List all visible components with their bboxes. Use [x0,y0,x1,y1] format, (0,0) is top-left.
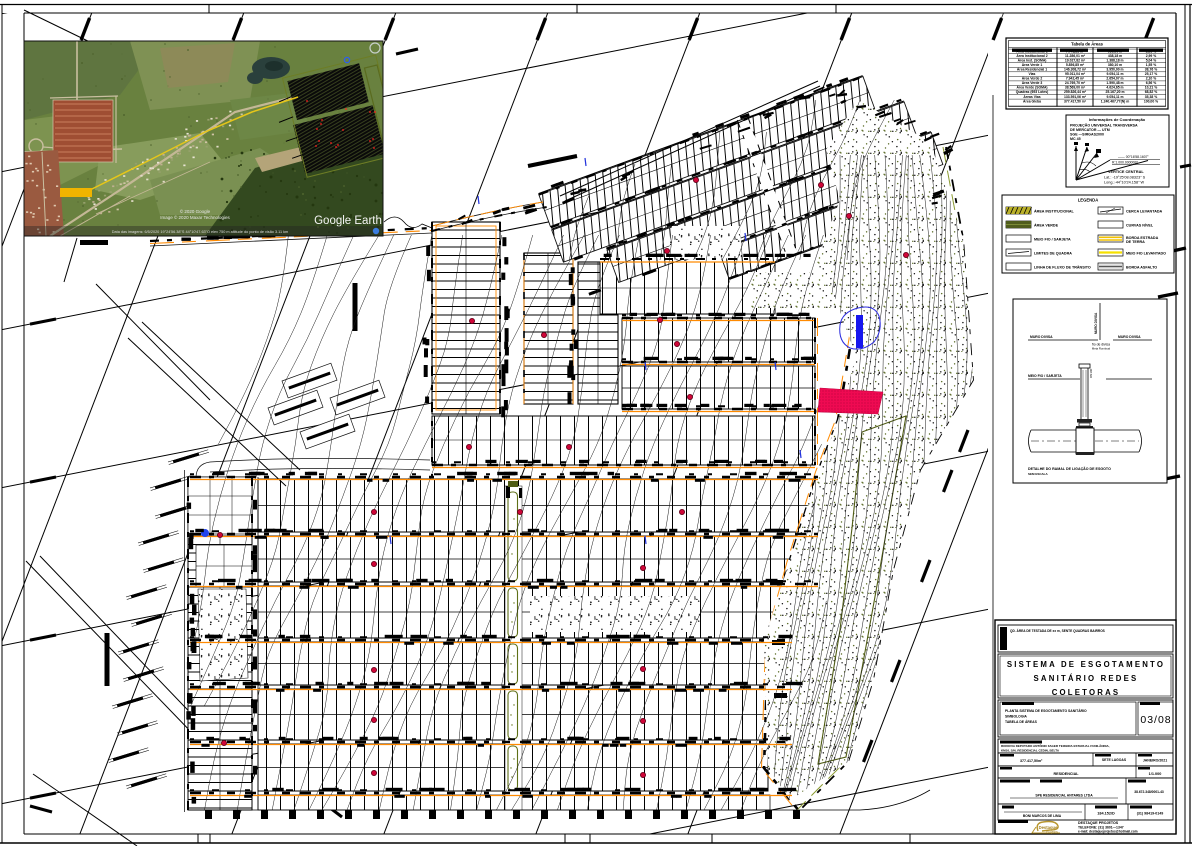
svg-text:MURO DIVISA: MURO DIVISA [1094,312,1098,334]
svg-text:9.054,11 m: 9.054,11 m [1107,72,1124,76]
svg-text:Tabela de Áreas: Tabela de Áreas [1071,42,1103,47]
svg-text:MEIO FIO LEVANTADO: MEIO FIO LEVANTADO [1126,252,1166,256]
svg-text:10,21 %: 10,21 % [1145,86,1157,90]
svg-text:SPE RESIDENCIAL ANTARES LTDA: SPE RESIDENCIAL ANTARES LTDA [1035,794,1093,798]
svg-text:5.856,85 m²: 5.856,85 m² [1066,63,1085,67]
svg-text:DETALHE DO RAMAL DE LIGAÇÃO DE: DETALHE DO RAMAL DE LIGAÇÃO DE ESGOTO [1028,466,1111,471]
svg-text:ÁREA VERDE: ÁREA VERDE [1034,223,1059,228]
svg-text:Vias: Vias [1029,72,1036,76]
svg-text:SIMBOLOGIA: SIMBOLOGIA [1005,715,1027,719]
svg-text:SETE LAGOAS: SETE LAGOAS [1102,758,1127,762]
svg-text:BONI MARCOS DE LIMA: BONI MARCOS DE LIMA [1023,814,1062,818]
svg-text:6,56 %: 6,56 % [1146,81,1157,85]
svg-text:2.654,07 m: 2.654,07 m [1106,77,1123,81]
svg-text:SGE —SIRGAS2000: SGE —SIRGAS2000 [1070,133,1104,137]
svg-text:Área Institucional 1: Área Institucional 1 [1016,48,1047,53]
svg-text:© 2020 Google: © 2020 Google [180,208,211,214]
svg-text:9.054,11 m: 9.054,11 m [1107,95,1124,99]
svg-text:4.624,65 m: 4.624,65 m [1106,86,1123,90]
svg-text:DESTAQUE PROJETOS: DESTAQUE PROJETOS [1078,821,1119,825]
svg-text:Long.:-44°10'24.158" W: Long.:-44°10'24.158" W [1104,181,1145,185]
svg-text:2,10 %: 2,10 % [1146,77,1157,81]
svg-text:380,10 m: 380,10 m [1108,63,1122,67]
svg-text:—— 00°16'58.1607": —— 00°16'58.1607" [1118,155,1150,159]
svg-text:SEM ESCALA: SEM ESCALA [1028,472,1049,476]
svg-text:Quadras (693 Lotes): Quadras (693 Lotes) [1016,90,1049,94]
svg-text:95.011,04 m²: 95.011,04 m² [1065,72,1086,76]
svg-text:MEIO FIO / SARJETA: MEIO FIO / SARJETA [1034,238,1071,242]
svg-text:Área Verde (SOMA): Área Verde (SOMA) [1016,85,1047,90]
svg-text:38.569,00 m²: 38.569,00 m² [1065,86,1086,90]
svg-text:SISTEMA DE ESGOTAMENTO: SISTEMA DE ESGOTAMENTO [1007,660,1165,669]
svg-text:RODOVIA DEPUTADO ANTÔNIO FAGER: RODOVIA DEPUTADO ANTÔNIO FAGER TEIXEIRA … [1001,743,1110,748]
svg-text:35,38 %: 35,38 % [1145,95,1157,99]
svg-text:LIMITES DE QUADRA: LIMITES DE QUADRA [1034,252,1072,256]
svg-text:R:1.000.0000000: R:1.000.0000000 [1112,161,1138,165]
svg-text:146.308,72 m²: 146.308,72 m² [1064,68,1087,72]
svg-text:COLETORAS: COLETORAS [1052,688,1121,697]
svg-text:1.590,48 m: 1.590,48 m [1106,81,1123,85]
svg-text:438,18 m: 438,18 m [1108,54,1122,58]
svg-text:3.950,00 m: 3.950,00 m [1106,68,1123,72]
svg-text:03/08: 03/08 [1140,714,1171,726]
svg-text:Image © 2020 Maxar Technologie: Image © 2020 Maxar Technologies [160,214,230,220]
svg-text:MURO DIVISA: MURO DIVISA [1030,335,1053,339]
svg-text:2,99 %: 2,99 % [1146,54,1157,58]
svg-text:1.240.467,77(N) m: 1.240.467,77(N) m [1101,99,1129,103]
svg-text:24.769,70 m²: 24.769,70 m² [1065,81,1086,85]
svg-text:Área Verde 2: Área Verde 2 [1022,76,1043,81]
svg-text:7.942,45 m²: 7.942,45 m² [1066,77,1085,81]
svg-text:TABELA DE ÁREAS: TABELA DE ÁREAS [1005,719,1038,724]
svg-text:LEGENDA: LEGENDA [1078,198,1098,203]
svg-text:68,82 %: 68,82 % [1145,90,1157,94]
svg-text:950,00 m: 950,00 m [1108,49,1122,53]
svg-text:QD. ÁREA DE TESTADA DE xx m, S: QD. ÁREA DE TESTADA DE xx m, SENTE QUADR… [1010,628,1105,633]
svg-text:PROJEÇÃO UNIVERSAL TRANSVERSA: PROJEÇÃO UNIVERSAL TRANSVERSA [1070,123,1138,128]
svg-text:Data das imagens: 6/5/2020: Data das imagens: 6/5/2020 19°24'56.38"S… [112,230,288,234]
svg-text:MC 45: MC 45 [1070,137,1081,141]
svg-text:Área Gleba: Área Gleba [1023,98,1041,103]
svg-text:1/1.000: 1/1.000 [1149,772,1162,776]
svg-text:KM16, S/N, RESIDENCIAL CEDIN,: KM16, S/N, RESIDENCIAL CEDIN, BELTA [1001,749,1060,753]
svg-text:e-mail: destaqueprojetos@hotm: e-mail: destaqueprojetos@hotmail.com [1078,830,1138,834]
svg-text:Google Earth: Google Earth [314,215,382,227]
svg-text:MEIO FIO / SARJETA: MEIO FIO / SARJETA [1028,374,1062,378]
svg-text:25.167,20 m: 25.167,20 m [1105,90,1124,94]
svg-text:Área Inst. (SOMA): Área Inst. (SOMA) [1018,57,1047,62]
svg-text:(31) 98419-0149: (31) 98419-0149 [1137,812,1164,816]
svg-text:CERCA LEVANTADA: CERCA LEVANTADA [1126,210,1163,214]
svg-text:Meta Rombual: Meta Rombual [1092,347,1111,351]
svg-text:BORDA ASFALTO: BORDA ASFALTO [1126,266,1157,270]
svg-text:19.027,82 m²: 19.027,82 m² [1065,58,1086,62]
svg-text:DE TERRA: DE TERRA [1126,240,1145,244]
svg-text:184.152/D: 184.152/D [1097,812,1115,816]
svg-text:CURVAS NÍVEL: CURVAS NÍVEL [1126,223,1154,228]
svg-text:VÉRTICE CENTRAL: VÉRTICE CENTRAL [1108,169,1144,174]
svg-text:ÁREA INSTITUCIONAL: ÁREA INSTITUCIONAL [1034,209,1075,214]
svg-text:38.672.348/0001-43: 38.672.348/0001-43 [1134,790,1164,794]
svg-text:Área Verde 3: Área Verde 3 [1022,80,1043,85]
svg-text:5,04 %: 5,04 % [1146,58,1157,62]
svg-text:Área Residencial 1: Área Residencial 1 [1017,67,1047,72]
svg-text:Área Institucional 2: Área Institucional 2 [1016,53,1047,58]
svg-text:DE MERCATOR — UTM: DE MERCATOR — UTM [1070,128,1110,132]
svg-text:DN100: DN100 [1089,368,1093,378]
svg-text:Projetos: Projetos [1046,830,1058,834]
svg-text:25,17 %: 25,17 % [1145,72,1157,76]
svg-text:100,00 %: 100,00 % [1144,99,1158,103]
svg-text:38,76 %: 38,76 % [1145,68,1157,72]
svg-text:Área Verde 1: Área Verde 1 [1022,62,1043,67]
svg-text:MURO DIVISA: MURO DIVISA [1118,335,1141,339]
svg-text:259.826,44 m²: 259.826,44 m² [1064,90,1087,94]
svg-text:RESIDENCIAL: RESIDENCIAL [1054,772,1080,776]
svg-text:377.417,50 m²: 377.417,50 m² [1064,99,1087,103]
svg-text:Informações de Coordenação: Informações de Coordenação [1089,117,1146,122]
svg-text:377.417,50m²: 377.417,50m² [1020,759,1043,763]
svg-text:Lat.: -19°25'08.08323" S: Lat.: -19°25'08.08323" S [1104,176,1146,180]
svg-text:2,05 %: 2,05 % [1146,49,1157,53]
svg-text:Áreas Vias: Áreas Vias [1023,94,1040,99]
svg-text:7.741,81 m²: 7.741,81 m² [1066,49,1085,53]
svg-text:133.591,06 m²: 133.591,06 m² [1064,95,1087,99]
svg-text:LINHA DE FLUXO DE TRÂNSITO: LINHA DE FLUXO DE TRÂNSITO [1034,265,1091,270]
svg-text:SANITÁRIO REDES: SANITÁRIO REDES [1034,674,1139,683]
svg-text:JANEIRO/2021: JANEIRO/2021 [1143,759,1167,763]
svg-text:11.286,01 m²: 11.286,01 m² [1065,54,1086,58]
svg-text:1.388,18 m: 1.388,18 m [1106,58,1123,62]
svg-text:PLANTA SISTEMA DE ESGOTAMENTO: PLANTA SISTEMA DE ESGOTAMENTO SANITÁRIO [1005,708,1087,713]
svg-text:1,55 %: 1,55 % [1146,63,1157,67]
